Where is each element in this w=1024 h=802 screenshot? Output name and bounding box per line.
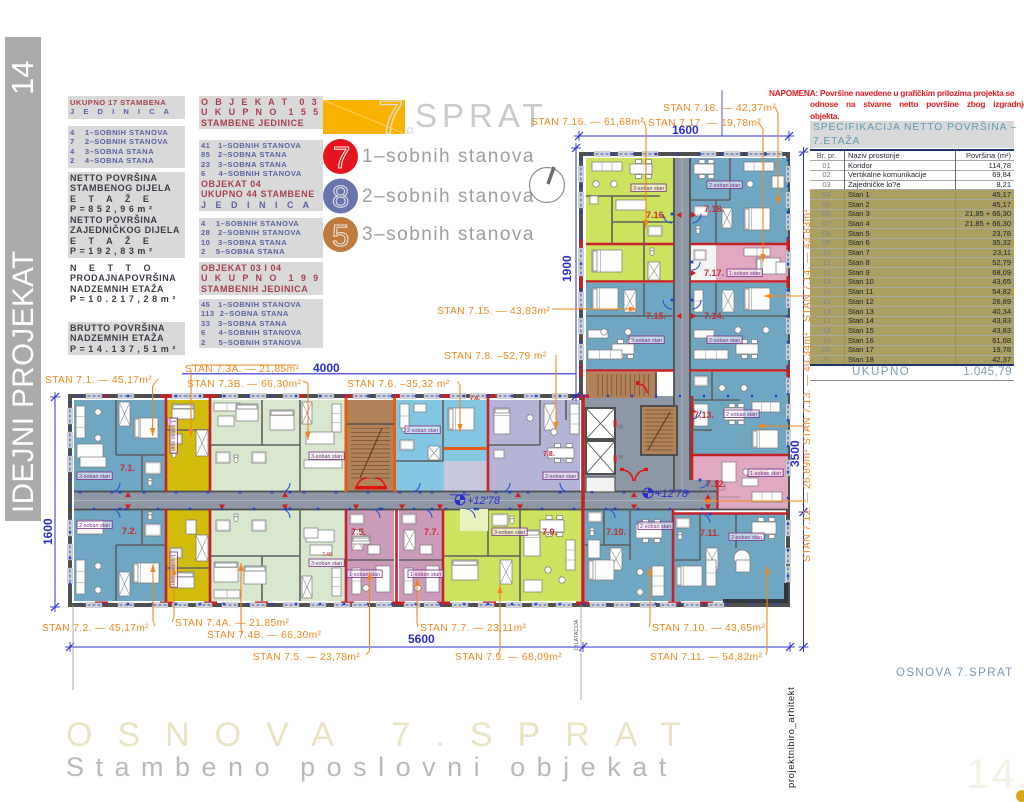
svg-text:STAN 7.12. — 26,89m²: STAN 7.12. — 26,89m² (802, 449, 813, 562)
svg-text:3-soban stan: 3-soban stan (311, 561, 342, 567)
svg-text:2-soban stan: 2-soban stan (726, 412, 757, 418)
svg-text:2-soban stan: 2-soban stan (79, 474, 110, 480)
svg-text:7.16.: 7.16. (646, 210, 666, 220)
svg-text:7.1.: 7.1. (120, 463, 135, 473)
svg-text:STAN 7.8. –52,79 m²: STAN 7.8. –52,79 m² (444, 351, 547, 362)
svg-text:DILATACIJA: DILATACIJA (574, 619, 580, 650)
svg-text:1600: 1600 (41, 518, 55, 545)
svg-text:STAN 7.4B. — 66,30m²: STAN 7.4B. — 66,30m² (207, 630, 321, 641)
svg-text:STAN 7.5. — 23,78m²: STAN 7.5. — 23,78m² (253, 652, 360, 663)
svg-text:STAN 7.6. –35,32 m²: STAN 7.6. –35,32 m² (347, 379, 450, 390)
svg-text:projektnibiro_arhitekt: projektnibiro_arhitekt (786, 687, 797, 788)
svg-text:7.5.: 7.5. (351, 527, 366, 537)
svg-text:7.14.: 7.14. (704, 311, 724, 321)
svg-text:STAN 7.4A. — 21,85m²: STAN 7.4A. — 21,85m² (175, 618, 289, 629)
svg-text:7.12.: 7.12. (706, 479, 726, 489)
svg-text:7.17.: 7.17. (704, 268, 724, 278)
svg-text:3-soban stan: 3-soban stan (633, 186, 664, 192)
svg-text:STAN 7.3B. — 66,30m²: STAN 7.3B. — 66,30m² (187, 379, 301, 390)
svg-text:7.9.: 7.9. (542, 527, 557, 537)
svg-text:STAN 7.17. — 19,78m²: STAN 7.17. — 19,78m² (648, 118, 761, 129)
svg-text:STAN 7.3A. — 21,85m²: STAN 7.3A. — 21,85m² (185, 364, 299, 375)
svg-text:2-soban stan: 2-soban stan (79, 523, 110, 529)
svg-text:3-soban stan: 3-soban stan (311, 454, 342, 460)
svg-text:1-soban stan: 1-soban stan (170, 420, 176, 451)
svg-text:7.18.: 7.18. (704, 204, 724, 214)
svg-text:7.2.: 7.2. (122, 526, 137, 536)
svg-text:7.15.: 7.15. (646, 311, 666, 321)
svg-text:7.7.: 7.7. (424, 527, 439, 537)
svg-text:7.11.: 7.11. (700, 528, 720, 538)
svg-text:7.13.: 7.13. (694, 410, 714, 420)
svg-text:STAN 7.10. — 43,65m²: STAN 7.10. — 43,65m² (652, 623, 765, 634)
svg-text:+12'78: +12'78 (467, 495, 501, 507)
svg-text:2-soban stan: 2-soban stan (640, 524, 671, 530)
svg-text:7.6.: 7.6. (470, 396, 480, 402)
svg-text:STAN 7.1. — 45,17m²: STAN 7.1. — 45,17m² (45, 375, 152, 386)
svg-text:STAN 7.18. — 42,37m²: STAN 7.18. — 42,37m² (663, 103, 776, 114)
svg-text:2-soban stan: 2-soban stan (631, 338, 662, 344)
svg-text:1900: 1900 (560, 255, 574, 282)
svg-text:7.10.: 7.10. (606, 527, 626, 537)
svg-text:STAN 7.9. — 68,09m²: STAN 7.9. — 68,09m² (455, 652, 562, 663)
svg-text:»: » (618, 451, 623, 461)
svg-text:STAN 7.13. — 40,34m²: STAN 7.13. — 40,34m² (802, 332, 813, 445)
svg-text:1-soban stan: 1-soban stan (410, 572, 441, 578)
svg-text:3500: 3500 (788, 440, 802, 467)
svg-text:2-soban stan: 2-soban stan (407, 428, 438, 434)
svg-text:2-soban stan: 2-soban stan (545, 474, 576, 480)
svg-text:STAN 7.11. — 54,82m²: STAN 7.11. — 54,82m² (650, 652, 763, 663)
svg-text:7.4B.: 7.4B. (322, 552, 334, 558)
svg-text:STAN 7.16. — 61,68m²: STAN 7.16. — 61,68m² (531, 117, 644, 128)
svg-text:»: » (618, 421, 623, 431)
svg-text:2-soban stan: 2-soban stan (709, 338, 740, 344)
svg-text:1-soban stan: 1-soban stan (729, 271, 760, 277)
svg-text:STAN 7.2. — 45,17m²: STAN 7.2. — 45,17m² (42, 623, 149, 634)
svg-text:3-soban stan: 3-soban stan (494, 530, 525, 536)
svg-text:1-soban stan: 1-soban stan (349, 572, 380, 578)
svg-text:4000: 4000 (313, 361, 340, 375)
svg-text:2-soban stan: 2-soban stan (709, 183, 740, 189)
svg-text:STAN 7.14. — 43,83m²: STAN 7.14. — 43,83m² (802, 209, 813, 322)
svg-text:STAN 7.15. — 43,83m²: STAN 7.15. — 43,83m² (437, 306, 550, 317)
svg-text:7.8.: 7.8. (543, 451, 555, 458)
svg-text:5600: 5600 (408, 632, 435, 646)
svg-text:STAN 7.7. — 23,11m²: STAN 7.7. — 23,11m² (420, 623, 527, 634)
svg-text:2-soban stan: 2-soban stan (731, 535, 762, 541)
svg-text:+12'78: +12'78 (655, 488, 689, 500)
svg-text:1-soban stan: 1-soban stan (750, 471, 781, 477)
